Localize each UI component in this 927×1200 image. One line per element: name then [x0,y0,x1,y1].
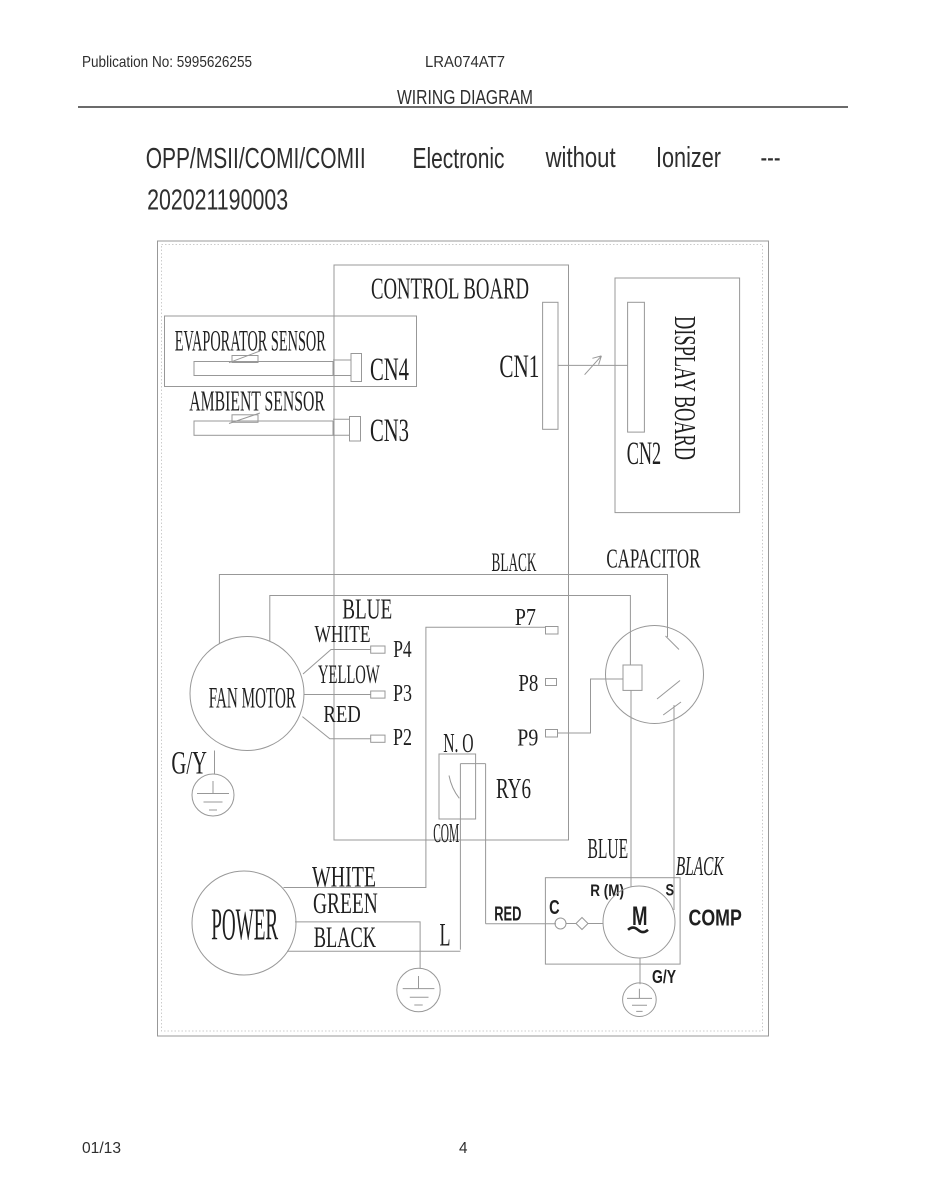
svg-text:YELLOW: YELLOW [318,660,380,689]
svg-text:without: without [545,142,616,174]
svg-text:P3: P3 [393,681,412,707]
svg-text:EVAPORATOR SENSOR: EVAPORATOR SENSOR [175,325,326,358]
svg-text:FAN MOTOR: FAN MOTOR [209,682,296,715]
svg-text:Publication No: 5995626255: Publication No: 5995626255 [82,54,252,71]
svg-text:S: S [666,880,675,899]
svg-text:P8: P8 [518,671,538,697]
svg-text:P2: P2 [393,725,412,751]
svg-text:COMP: COMP [689,904,742,930]
svg-text:DISPLAY BOARD: DISPLAY BOARD [668,316,703,460]
svg-text:WIRING DIAGRAM: WIRING DIAGRAM [397,87,533,109]
svg-text:RY6: RY6 [496,773,531,805]
svg-text:Electronic: Electronic [413,143,505,175]
svg-text:CONTROL BOARD: CONTROL BOARD [371,271,529,306]
svg-text:GREEN: GREEN [313,887,378,920]
svg-text:R (M): R (M) [590,881,624,900]
svg-text:COM: COM [433,818,459,848]
svg-text:CAPACITOR: CAPACITOR [606,544,700,574]
svg-text:LRA074AT7: LRA074AT7 [425,54,505,71]
svg-text:Ionizer: Ionizer [656,142,721,174]
svg-text:---: --- [761,142,781,174]
svg-text:RED: RED [494,903,521,925]
svg-text:BLACK: BLACK [676,851,725,881]
svg-text:CN4: CN4 [370,352,409,388]
svg-text:202021190003: 202021190003 [147,185,288,217]
svg-text:G/Y: G/Y [171,746,207,782]
svg-text:RED: RED [323,702,360,728]
svg-text:WHITE: WHITE [315,622,371,648]
svg-text:BLACK: BLACK [492,548,537,577]
svg-text:01/13: 01/13 [82,1140,121,1157]
svg-text:POWER: POWER [211,899,278,950]
svg-text:BLUE: BLUE [588,834,629,865]
svg-text:BLUE: BLUE [342,594,392,626]
svg-text:CN3: CN3 [370,413,409,449]
svg-text:P9: P9 [517,725,538,751]
svg-text:CN2: CN2 [627,436,662,472]
svg-text:OPP/MSII/COMI/COMII: OPP/MSII/COMI/COMII [146,143,366,175]
svg-text:4: 4 [459,1140,468,1157]
svg-text:P4: P4 [393,637,412,663]
svg-text:BLACK: BLACK [314,921,376,954]
svg-text:C: C [549,897,560,919]
svg-text:L: L [440,918,451,954]
svg-text:CN1: CN1 [499,349,539,385]
svg-text:G/Y: G/Y [652,967,676,987]
svg-text:AMBIENT SENSOR: AMBIENT SENSOR [189,387,325,418]
